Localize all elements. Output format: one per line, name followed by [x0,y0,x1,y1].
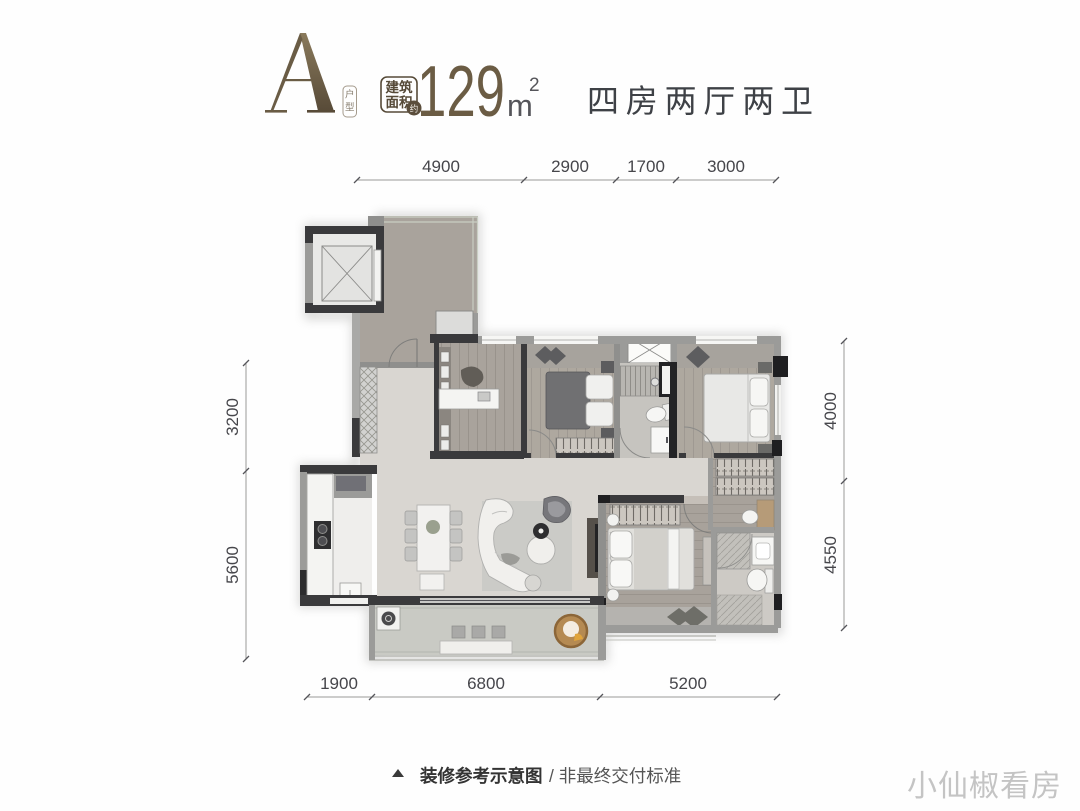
svg-text:建筑: 建筑 [385,79,413,95]
svg-text:4550: 4550 [821,536,840,574]
svg-text:2: 2 [529,75,540,96]
svg-text:4900: 4900 [422,157,460,176]
svg-text:5600: 5600 [223,546,242,584]
svg-text:小仙椒看房: 小仙椒看房 [907,770,1062,803]
svg-text:型: 型 [345,103,355,114]
svg-text:3200: 3200 [223,398,242,436]
svg-text:129: 129 [417,52,505,132]
svg-text:3000: 3000 [707,157,745,176]
svg-text:4000: 4000 [821,392,840,430]
svg-text:1700: 1700 [627,157,665,176]
svg-text:/ 非最终交付标准: / 非最终交付标准 [549,766,681,786]
svg-text:2900: 2900 [551,157,589,176]
svg-text:1900: 1900 [320,674,358,693]
svg-text:装修参考示意图: 装修参考示意图 [419,766,543,786]
svg-text:6800: 6800 [467,674,505,693]
svg-text:5200: 5200 [669,674,707,693]
svg-text:户: 户 [345,89,355,101]
